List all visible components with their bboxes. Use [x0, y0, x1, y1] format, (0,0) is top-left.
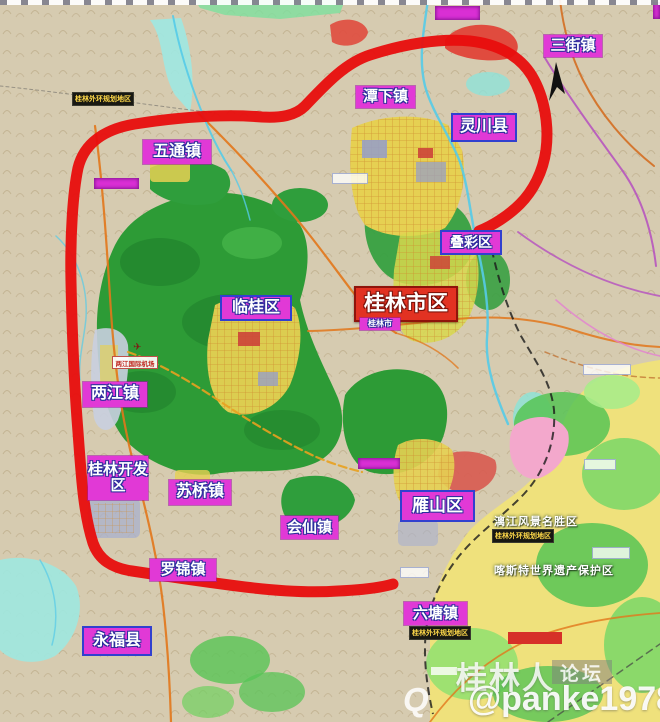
road-tag [435, 6, 480, 20]
label-guilin-dev-zone: 桂林开发区 [88, 456, 148, 500]
map-canvas [0, 0, 660, 722]
minor-map-label [592, 547, 630, 559]
label-liutang-town: 六塘镇 [404, 602, 467, 625]
ring-note-box: 桂林外环规划地区 [492, 529, 554, 543]
ring-note-box: 桂林外环规划地区 [72, 92, 134, 106]
label-guilin-city-area: 桂林市区 [354, 286, 458, 322]
label-suqiao-town: 苏桥镇 [169, 480, 231, 505]
airport-icon: ✈ [133, 342, 141, 353]
ring-note-box: 桂林外环规划地区 [409, 626, 471, 640]
label-yongfu-county: 永福县 [82, 626, 152, 656]
label-wutong-town: 五通镇 [143, 140, 211, 164]
label-lingui-district: 临桂区 [220, 295, 292, 321]
label-sanjie-town: 三街镇 [544, 35, 602, 57]
label-luojin-town: 罗锦镇 [150, 559, 216, 581]
watermark-handle: @panke1978 [468, 680, 660, 719]
label-huixian-town: 会仙镇 [281, 516, 338, 539]
censor-bar [508, 632, 562, 644]
label-tanxia-town: 潭下镇 [356, 86, 415, 108]
minor-map-label [584, 459, 616, 470]
planning-map: 三街镇 潭下镇 灵川县 五通镇 叠彩区 临桂区 桂林市区 桂林市 两江镇 桂林开… [0, 0, 660, 722]
cropped-title-strip [0, 0, 660, 5]
watermark-dash [431, 667, 457, 675]
label-lingchuan-county: 灵川县 [451, 113, 517, 142]
minor-map-label [583, 364, 631, 375]
lijiang-scenic-label: 漓江风景名胜区 [494, 513, 578, 529]
label-diecai-district: 叠彩区 [440, 230, 502, 255]
label-yanshan-district: 雁山区 [400, 490, 475, 522]
karst-heritage-label: 喀斯特世界遗产保护区 [494, 562, 614, 578]
label-liangjiang-town: 两江镇 [83, 382, 147, 407]
watermark-logo: Q [403, 681, 429, 719]
minor-map-label [332, 173, 368, 184]
road-tag [358, 458, 400, 469]
road-tag [94, 178, 139, 189]
label-guilin-city-small: 桂林市 [360, 318, 400, 330]
airport-label: 两江国际机场 [112, 356, 158, 369]
minor-map-label [400, 567, 429, 578]
